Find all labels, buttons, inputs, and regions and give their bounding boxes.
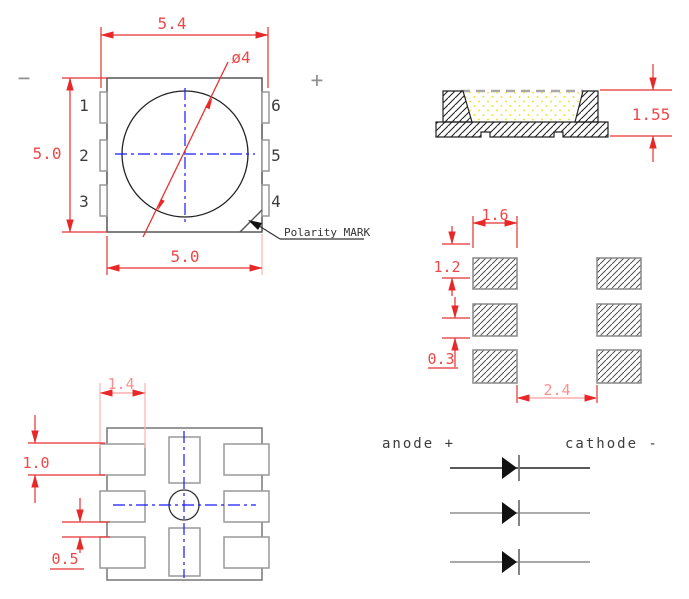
dim-label-1-0: 1.0 — [22, 454, 49, 472]
solder-pads — [473, 258, 641, 383]
bottom-pad-right-1 — [224, 444, 269, 475]
cathode-label: cathode - — [565, 436, 659, 452]
minus-polarity-symbol: − — [18, 66, 31, 90]
dim-label-1-55: 1.55 — [632, 105, 671, 124]
pad-left-top — [473, 258, 517, 289]
bottom-pad-right-3 — [224, 537, 269, 568]
top-view: 5.4 ø4 5.0 5.0 1 2 3 6 5 4 − + Polarity … — [18, 14, 371, 275]
plus-polarity-symbol: + — [311, 68, 324, 92]
dim-label-1-4: 1.4 — [107, 375, 134, 393]
pad-right-top — [597, 258, 641, 289]
pin-2-lead — [100, 140, 107, 171]
pad-left-middle — [473, 304, 517, 336]
circuit-schematic: anode + cathode - — [382, 436, 659, 575]
drawing-svg: 5.4 ø4 5.0 5.0 1 2 3 6 5 4 − + Polarity … — [0, 0, 689, 599]
pad-left-bottom — [473, 350, 517, 383]
pin-5-lead — [262, 140, 269, 171]
polarity-mark-label: Polarity MARK — [284, 226, 370, 239]
diode-symbol-1 — [450, 455, 590, 481]
pin-label-2: 2 — [79, 146, 89, 165]
dim-label-1-6: 1.6 — [481, 206, 508, 224]
bottom-pad-left-2 — [100, 491, 145, 522]
bottom-pad-right-2 — [224, 491, 269, 522]
anode-label: anode + — [382, 436, 455, 452]
dim-label-5-4: 5.4 — [158, 14, 187, 33]
diode-3-triangle — [502, 551, 517, 573]
pad-right-middle — [597, 304, 641, 336]
led-package-drawing: 5.4 ø4 5.0 5.0 1 2 3 6 5 4 − + Polarity … — [0, 0, 689, 599]
dim-label-lens-diameter: ø4 — [231, 48, 250, 67]
dim-label-0-5: 0.5 — [51, 550, 78, 568]
pin-label-3: 3 — [79, 192, 89, 211]
dim-label-1-2: 1.2 — [433, 258, 460, 276]
encapsulant-fill — [464, 92, 582, 121]
pin-label-1: 1 — [79, 96, 89, 115]
pin-4-lead — [262, 185, 269, 216]
pin-label-5: 5 — [271, 146, 281, 165]
dim-label-5-0-left: 5.0 — [33, 144, 62, 163]
diode-symbol-3 — [450, 549, 590, 575]
diode-1-triangle — [502, 457, 517, 479]
base-substrate — [436, 122, 608, 137]
pin-label-6: 6 — [271, 96, 281, 115]
dim-label-2-4: 2.4 — [543, 381, 570, 399]
dim-label-5-0-bottom: 5.0 — [171, 247, 200, 266]
pad-right-bottom — [597, 350, 641, 383]
diode-2-triangle — [502, 502, 517, 524]
bottom-pad-left-1 — [100, 444, 145, 475]
bottom-pad-left-3 — [100, 537, 145, 568]
pin-3-lead — [100, 185, 107, 216]
solder-pad-layout: 1.6 1.2 0.3 2.4 — [427, 206, 641, 403]
side-view: 1.55 — [436, 64, 672, 162]
pin-label-4: 4 — [271, 192, 281, 211]
pin-1-lead — [100, 92, 107, 123]
pin-6-lead — [262, 92, 269, 123]
diode-symbol-2 — [450, 500, 590, 526]
dim-label-0-3: 0.3 — [427, 350, 454, 368]
bottom-view: 1.4 1.0 0.5 — [22, 375, 269, 580]
